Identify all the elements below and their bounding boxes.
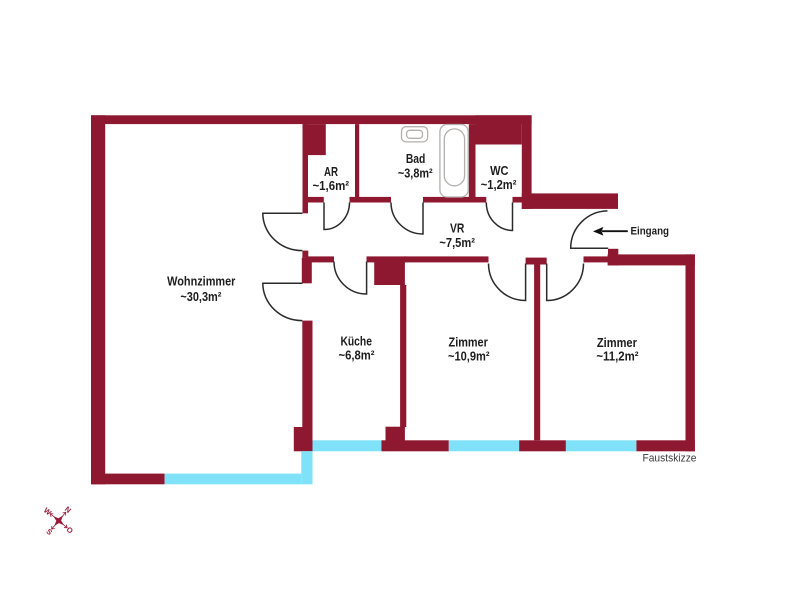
svg-text:Eingang: Eingang [631,225,670,237]
svg-text:Zimmer: Zimmer [449,334,488,349]
svg-text:~7,5m²: ~7,5m² [439,235,475,250]
svg-text:~1,2m²: ~1,2m² [481,177,517,192]
svg-text:AR: AR [324,164,338,179]
svg-text:VR: VR [450,221,465,236]
svg-text:~11,2m²: ~11,2m² [596,349,639,364]
svg-text:Wohnzimmer: Wohnzimmer [167,273,235,288]
svg-text:~30,3m²: ~30,3m² [180,289,222,304]
svg-text:~6,8m²: ~6,8m² [339,348,376,363]
svg-text:~10,9m²: ~10,9m² [448,349,490,364]
svg-text:~1,6m²: ~1,6m² [312,178,349,193]
svg-text:WC: WC [490,163,509,178]
svg-text:~3,8m²: ~3,8m² [398,165,433,180]
svg-text:Bad: Bad [406,151,426,166]
svg-text:Küche: Küche [340,334,372,349]
svg-text:Faustskizze: Faustskizze [643,453,697,465]
svg-text:S: S [44,527,54,537]
svg-text:W: W [42,506,54,518]
